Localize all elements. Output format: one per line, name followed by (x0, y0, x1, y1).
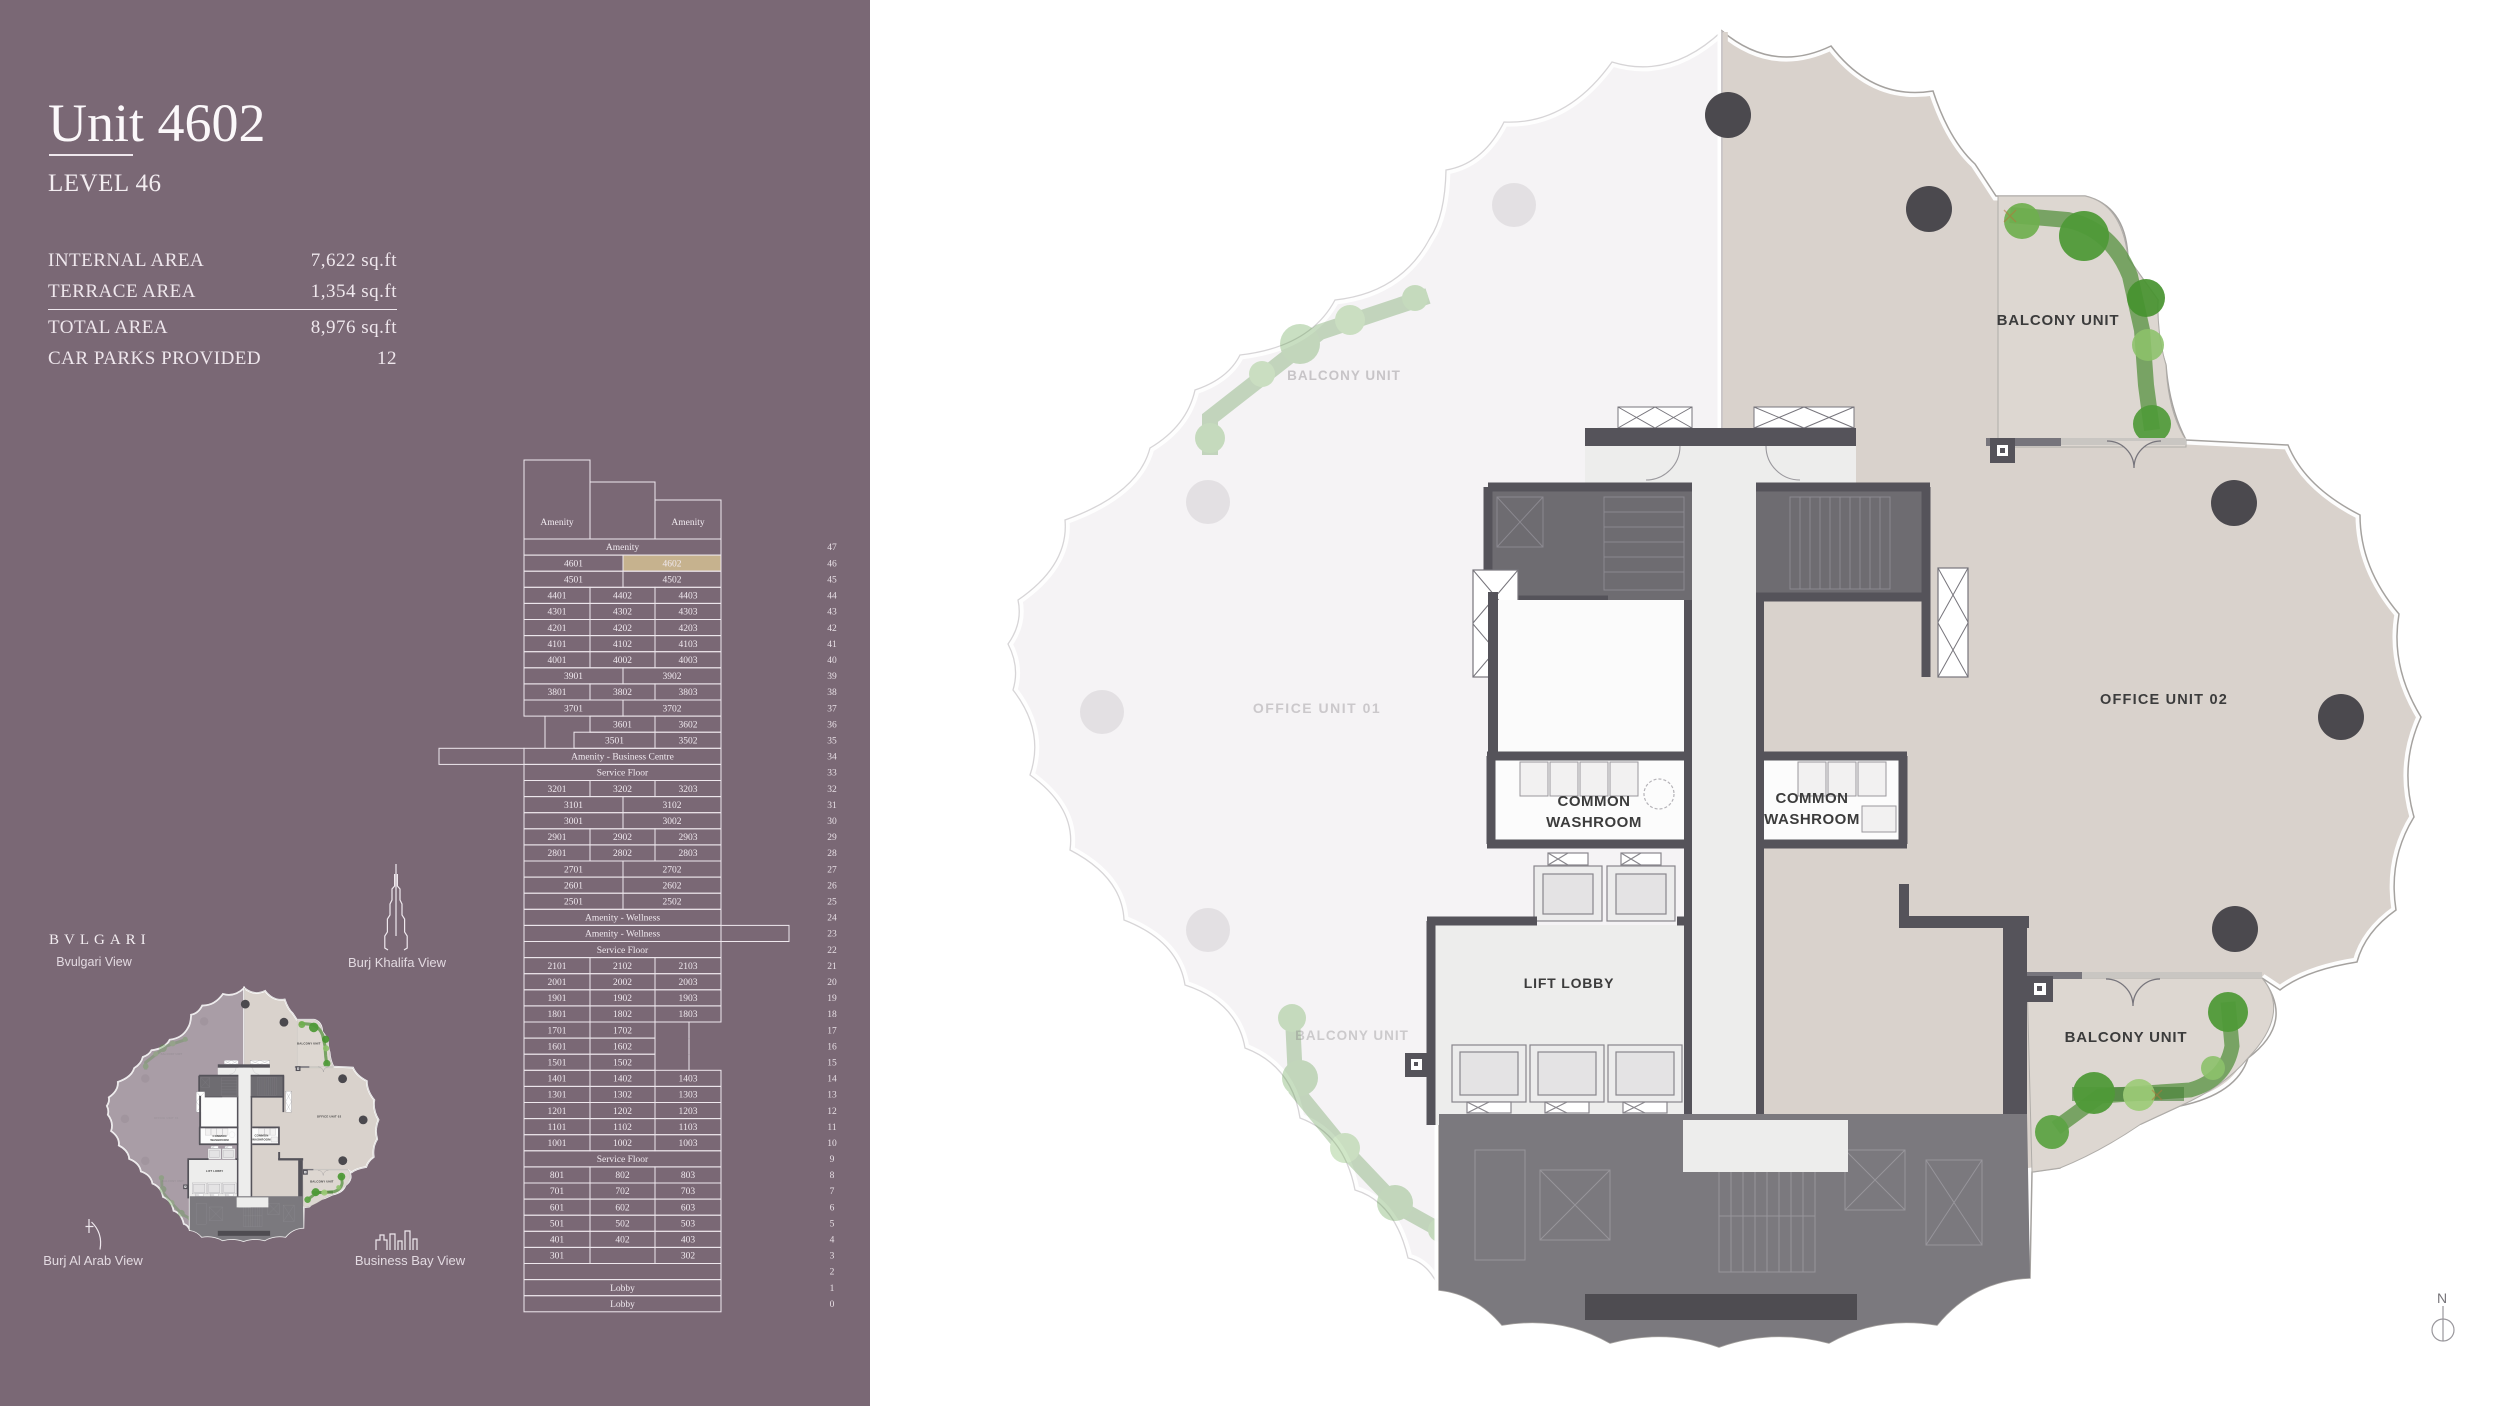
svg-text:N: N (2437, 1290, 2447, 1306)
